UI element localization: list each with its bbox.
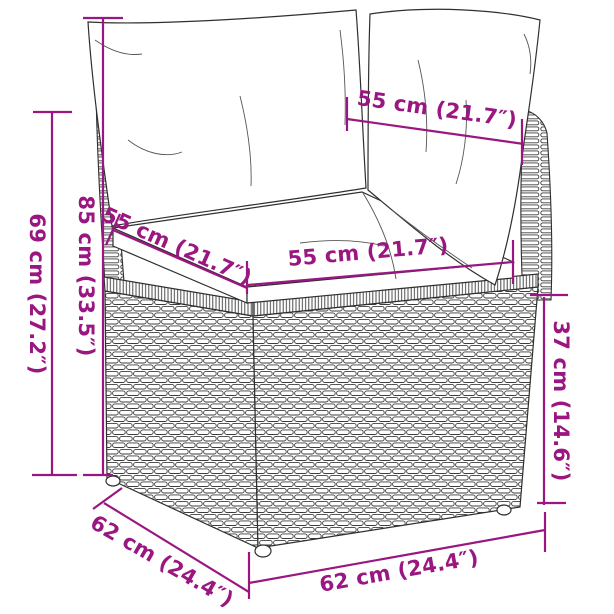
wicker-base [104,274,538,557]
foot-back-left [106,476,120,486]
foot-front-right [497,505,511,515]
back-cushion-left [88,10,366,226]
dim-label-arm-height: 69 cm (27.2″) [25,213,49,374]
dimension-diagram: 69 cm (27.2″) 85 cm (33.5″) 55 cm (21.7″… [0,0,614,614]
dim-label-base-height: 37 cm (14.6″) [549,320,573,481]
base-front-face [253,287,538,548]
base-left-face [105,291,258,548]
back-post-right [521,110,552,300]
foot-front-left [255,545,271,557]
dim-label-total-height: 85 cm (33.5″) [74,195,98,356]
